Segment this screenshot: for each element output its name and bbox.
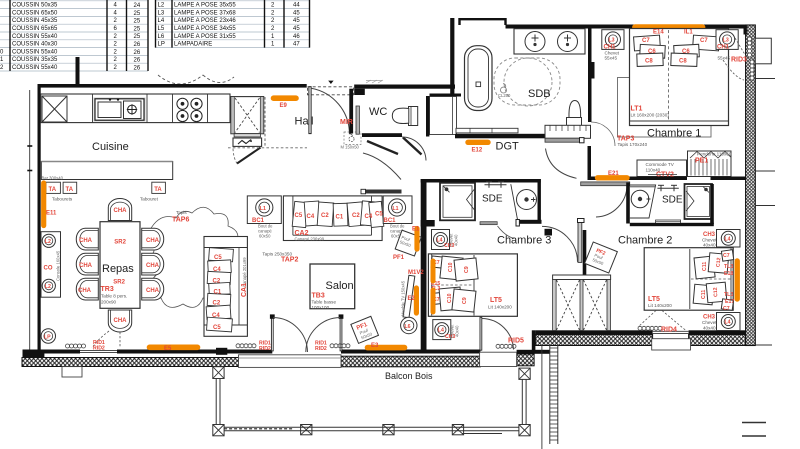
svg-text:C10: C10: [448, 262, 454, 272]
svg-text:CHA: CHA: [114, 208, 128, 214]
svg-text:TA: TA: [154, 187, 162, 193]
svg-text:SR2: SR2: [114, 240, 126, 246]
svg-text:RID5: RID5: [508, 338, 524, 345]
svg-text:Penderie 110x60: Penderie 110x60: [697, 152, 732, 157]
svg-text:CHA: CHA: [79, 238, 93, 244]
svg-text:C6: C6: [682, 49, 690, 55]
svg-text:Canapé 236x99: Canapé 236x99: [295, 237, 325, 242]
svg-text:E14: E14: [653, 30, 664, 36]
svg-text:C7: C7: [642, 38, 650, 44]
svg-text:40x40: 40x40: [703, 326, 716, 331]
svg-text:Chambre 3: Chambre 3: [497, 235, 551, 247]
svg-text:C1: C1: [214, 290, 222, 296]
svg-text:C11: C11: [701, 290, 707, 299]
svg-text:45: 45: [293, 10, 300, 16]
svg-text:RID2: RID2: [259, 346, 271, 352]
svg-text:Balcon Bois: Balcon Bois: [385, 371, 433, 381]
svg-text:Canapé 201x99: Canapé 201x99: [242, 257, 247, 287]
svg-text:CH1: CH1: [717, 45, 730, 51]
svg-text:CHA: CHA: [79, 263, 93, 269]
svg-text:LAMPE A POSE 34x55: LAMPE A POSE 34x55: [174, 26, 236, 32]
svg-text:Tapis 170x240: Tapis 170x240: [618, 142, 648, 147]
svg-text:Lit 140x200: Lit 140x200: [648, 303, 672, 308]
svg-text:25: 25: [134, 11, 141, 17]
svg-text:CHA: CHA: [78, 288, 92, 294]
svg-text:CHA: CHA: [146, 238, 160, 244]
svg-text:Salon: Salon: [326, 280, 354, 292]
svg-text:TA: TA: [66, 187, 74, 193]
svg-text:E5: E5: [164, 346, 172, 352]
svg-text:L4: L4: [438, 328, 444, 334]
svg-text:200x90: 200x90: [101, 300, 117, 305]
svg-text:L4: L4: [158, 18, 165, 24]
svg-text:Repas: Repas: [102, 263, 134, 275]
svg-text:COUSSIN 55x40: COUSSIN 55x40: [12, 49, 58, 55]
svg-text:C5: C5: [213, 325, 221, 331]
svg-text:L5: L5: [158, 26, 165, 32]
svg-text:COUSSIN 35x35: COUSSIN 35x35: [12, 57, 58, 63]
svg-text:L2: L2: [158, 3, 165, 9]
svg-text:100x100: 100x100: [312, 305, 330, 310]
svg-text:L3: L3: [158, 10, 165, 16]
svg-text:LT5: LT5: [648, 296, 660, 303]
svg-text:Tabourets: Tabourets: [52, 197, 73, 202]
svg-text:C4: C4: [365, 214, 373, 220]
svg-text:CHA: CHA: [146, 263, 160, 269]
svg-text:45: 45: [293, 18, 300, 24]
svg-text:COUSSIN 45x35: COUSSIN 45x35: [12, 18, 58, 24]
svg-text:COUSSIN 55x40: COUSSIN 55x40: [12, 34, 58, 40]
svg-text:C5: C5: [295, 213, 303, 219]
svg-text:LAMPE A POSE 31x55: LAMPE A POSE 31x55: [174, 34, 236, 40]
svg-text:C2: C2: [352, 213, 360, 219]
svg-text:L6: L6: [158, 34, 165, 40]
svg-text:E3: E3: [371, 343, 379, 349]
svg-text:LAMPE A POSE 23x46: LAMPE A POSE 23x46: [174, 18, 236, 24]
svg-text:LP: LP: [158, 42, 165, 48]
svg-text:RID4: RID4: [661, 327, 677, 334]
svg-text:C9: C9: [464, 266, 470, 273]
svg-text:Chambre 1: Chambre 1: [647, 128, 701, 140]
svg-text:E9: E9: [280, 103, 288, 109]
svg-text:WC: WC: [369, 106, 387, 118]
svg-text:Table basse: Table basse: [312, 299, 337, 304]
svg-text:40x40: 40x40: [455, 325, 460, 337]
svg-text:44: 44: [293, 3, 300, 9]
svg-text:SDE: SDE: [482, 194, 503, 205]
svg-text:CO: CO: [44, 266, 53, 272]
svg-text:RID2: RID2: [315, 346, 327, 352]
svg-text:C8: C8: [679, 59, 687, 65]
svg-text:SDE: SDE: [662, 195, 683, 206]
svg-text:C6: C6: [648, 49, 656, 55]
svg-text:Console 160x45: Console 160x45: [56, 250, 61, 281]
svg-text:LAMPADAIRE: LAMPADAIRE: [174, 42, 212, 48]
svg-text:Tapis: Tapis: [176, 210, 187, 215]
svg-text:COUSSIN 55x40: COUSSIN 55x40: [12, 65, 58, 71]
svg-text:Table 8 pers.: Table 8 pers.: [101, 294, 127, 299]
svg-text:25: 25: [134, 34, 141, 40]
svg-text:TA: TA: [49, 187, 57, 193]
svg-text:MIR: MIR: [340, 119, 353, 126]
svg-text:C4: C4: [307, 214, 315, 220]
svg-text:L4: L4: [725, 320, 731, 326]
svg-text:47: 47: [293, 42, 300, 48]
svg-text:COUSSIN 65x50: COUSSIN 65x50: [12, 10, 58, 16]
svg-text:40x40: 40x40: [703, 243, 716, 248]
svg-text:C4: C4: [213, 267, 221, 273]
svg-text:Commode TV: Commode TV: [646, 162, 675, 167]
svg-text:C2: C2: [213, 301, 221, 307]
svg-text:Meuble TV 150x45: Meuble TV 150x45: [401, 280, 406, 316]
svg-text:L2: L2: [45, 239, 51, 245]
svg-text:C7: C7: [700, 38, 708, 44]
svg-text:24: 24: [134, 3, 141, 9]
svg-text:Lit 160x200 (2030): Lit 160x200 (2030): [631, 113, 670, 118]
svg-text:C11: C11: [702, 262, 708, 271]
svg-text:PE1: PE1: [695, 158, 708, 165]
svg-text:45: 45: [293, 26, 300, 32]
svg-text:Cuisine: Cuisine: [92, 141, 129, 153]
svg-text:E1: E1: [412, 227, 420, 233]
svg-text:C8: C8: [645, 59, 653, 65]
svg-text:RID2: RID2: [93, 346, 105, 352]
svg-text:C7: C7: [723, 253, 730, 259]
svg-text:L4: L4: [437, 238, 443, 244]
svg-text:E12: E12: [472, 148, 483, 154]
svg-text:26: 26: [134, 58, 141, 64]
svg-text:C4: C4: [212, 313, 220, 319]
svg-text:C7: C7: [723, 306, 730, 312]
svg-text:IL1: IL1: [684, 30, 693, 36]
svg-text:CHA: CHA: [146, 288, 160, 294]
svg-text:C2: C2: [321, 213, 329, 219]
svg-text:LAMPE A POSE 37x68: LAMPE A POSE 37x68: [174, 10, 236, 16]
svg-text:CA1: CA1: [241, 283, 248, 297]
svg-text:26: 26: [134, 42, 141, 48]
svg-text:C10: C10: [447, 293, 453, 303]
svg-text:L6: L6: [405, 324, 411, 330]
svg-text:C1: C1: [336, 215, 344, 221]
svg-text:25: 25: [134, 19, 141, 25]
svg-text:C12: C12: [713, 287, 720, 297]
svg-text:LAMPE A POSE 35x55: LAMPE A POSE 35x55: [174, 3, 236, 9]
svg-text:SR2: SR2: [113, 280, 125, 286]
svg-text:COUSSIN 40x30: COUSSIN 40x30: [12, 42, 58, 48]
svg-text:L1: L1: [393, 206, 399, 212]
svg-text:TAP6: TAP6: [172, 217, 189, 224]
svg-text:CL250: CL250: [498, 93, 511, 98]
svg-text:46: 46: [293, 34, 300, 40]
svg-text:L2: L2: [45, 284, 51, 290]
svg-text:LT1: LT1: [631, 106, 643, 113]
svg-text:DGT: DGT: [496, 141, 520, 153]
svg-text:TR3: TR3: [101, 286, 114, 293]
svg-text:55x45: 55x45: [718, 56, 731, 61]
svg-text:LT5: LT5: [490, 297, 502, 304]
svg-text:L3: L3: [609, 38, 615, 44]
svg-text:TL3: TL3: [724, 292, 733, 298]
svg-text:C9: C9: [462, 297, 468, 304]
svg-text:TAP2: TAP2: [281, 257, 298, 264]
svg-text:Chevet: Chevet: [702, 320, 717, 325]
svg-text:RID3: RID3: [731, 57, 747, 64]
svg-text:CHA: CHA: [114, 318, 128, 324]
svg-text:COUSSIN 50x35: COUSSIN 50x35: [12, 3, 58, 9]
svg-text:C12: C12: [716, 257, 723, 267]
svg-text:TL3: TL3: [724, 264, 733, 270]
svg-text:25: 25: [134, 26, 141, 32]
svg-text:26: 26: [134, 50, 141, 56]
svg-text:E21: E21: [608, 171, 619, 177]
svg-text:26: 26: [134, 65, 141, 71]
svg-text:LP: LP: [44, 334, 51, 340]
svg-text:COUSSIN 65x65: COUSSIN 65x65: [12, 26, 58, 32]
svg-text:SDB: SDB: [528, 88, 551, 100]
svg-text:E18: E18: [724, 271, 733, 277]
svg-text:Tabouret: Tabouret: [140, 197, 159, 202]
svg-text:L1: L1: [260, 206, 266, 212]
svg-text:C5: C5: [375, 212, 383, 218]
svg-text:40x40: 40x40: [454, 234, 459, 246]
svg-text:C2: C2: [213, 279, 221, 285]
svg-text:PF1: PF1: [393, 255, 405, 261]
svg-text:55x45: 55x45: [605, 56, 618, 61]
svg-text:M 150x50: M 150x50: [341, 145, 360, 150]
svg-text:E17: E17: [725, 299, 734, 305]
svg-text:L4: L4: [725, 237, 731, 243]
svg-text:Bar 300x40: Bar 300x40: [42, 176, 64, 181]
svg-text:C5: C5: [214, 255, 222, 261]
svg-text:60x50: 60x50: [259, 234, 271, 239]
svg-text:Chambre 2: Chambre 2: [618, 235, 672, 247]
svg-text:Lit 140x200: Lit 140x200: [488, 305, 512, 310]
svg-text:E11: E11: [46, 211, 57, 217]
svg-text:L3: L3: [723, 38, 729, 44]
svg-text:E2: E2: [408, 296, 416, 302]
